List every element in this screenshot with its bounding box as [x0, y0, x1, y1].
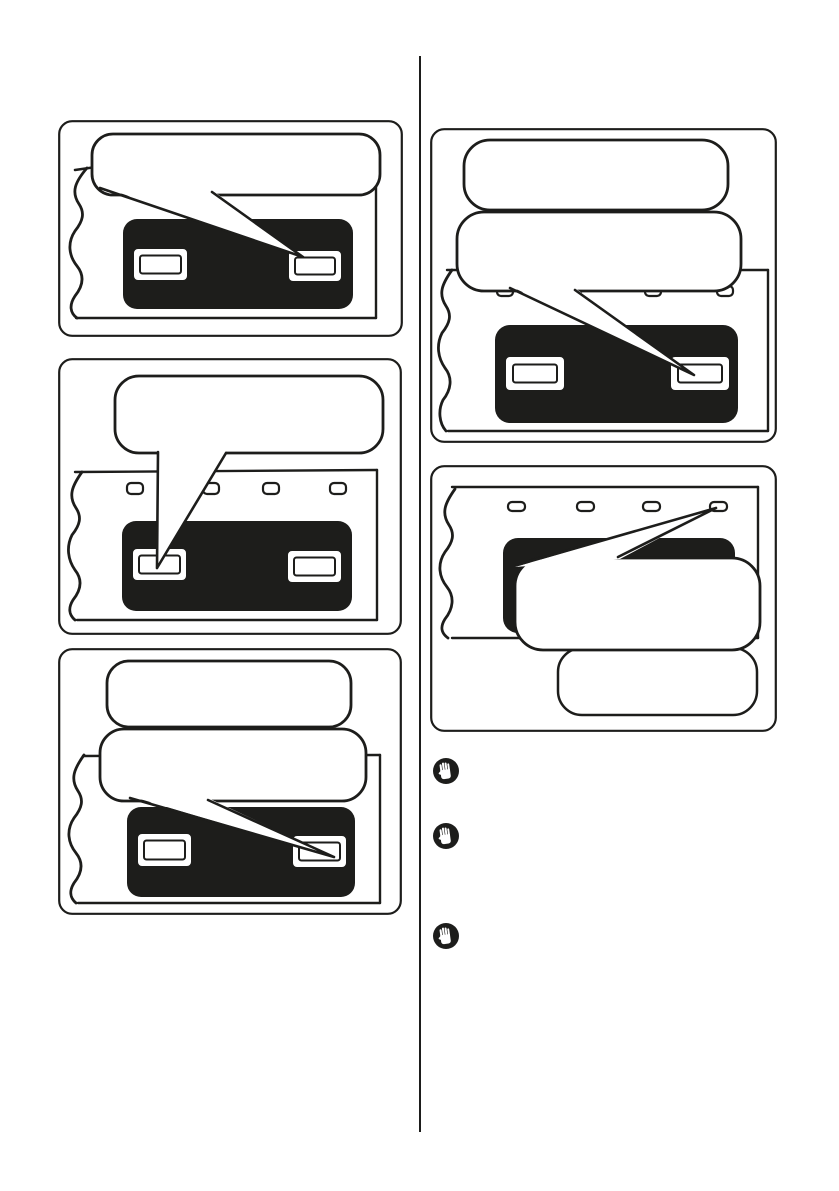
- speech-bubble: [115, 376, 383, 453]
- right-slot: [670, 356, 730, 391]
- left-slot: [505, 356, 565, 391]
- figure-left-top: [58, 120, 403, 337]
- hand-stop-icon: [432, 757, 460, 785]
- hand-stop-icon: [432, 922, 460, 950]
- figure-left-bottom: [58, 648, 402, 915]
- right-slot: [287, 550, 342, 583]
- left-slot: [137, 833, 192, 867]
- speech-bubble-top: [107, 661, 351, 727]
- left-slot: [133, 248, 188, 281]
- speech-bubble-top: [464, 140, 728, 210]
- speech-bubble-main: [515, 558, 760, 650]
- figure-right-bottom: [430, 465, 777, 732]
- speech-bubble-lower: [558, 648, 757, 715]
- manual-page: [0, 0, 839, 1191]
- figure-right-top: [430, 128, 777, 443]
- speech-bubble-bottom: [100, 729, 366, 801]
- figure-left-middle: [58, 358, 402, 635]
- hand-stop-icon: [432, 822, 460, 850]
- speech-bubble: [92, 134, 380, 195]
- speech-bubble-bottom: [457, 212, 741, 291]
- column-divider-rule: [419, 56, 421, 1132]
